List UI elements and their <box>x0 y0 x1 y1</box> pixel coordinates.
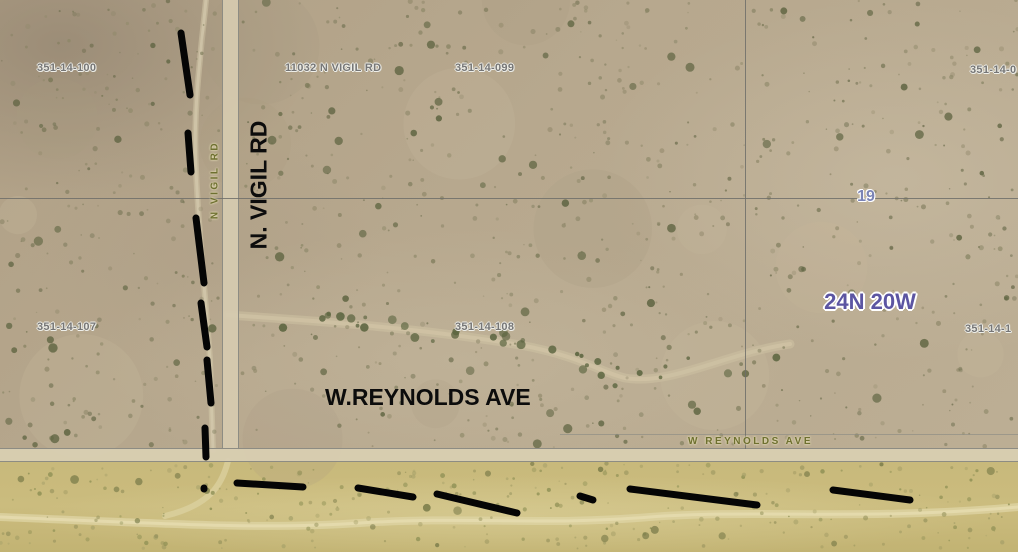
bottom-white-strip <box>0 552 1018 556</box>
dashed-annotation-lines <box>0 0 1018 556</box>
aerial-map[interactable]: N VIGIL RD W REYNOLDS AVE 351-14-1001103… <box>0 0 1018 556</box>
